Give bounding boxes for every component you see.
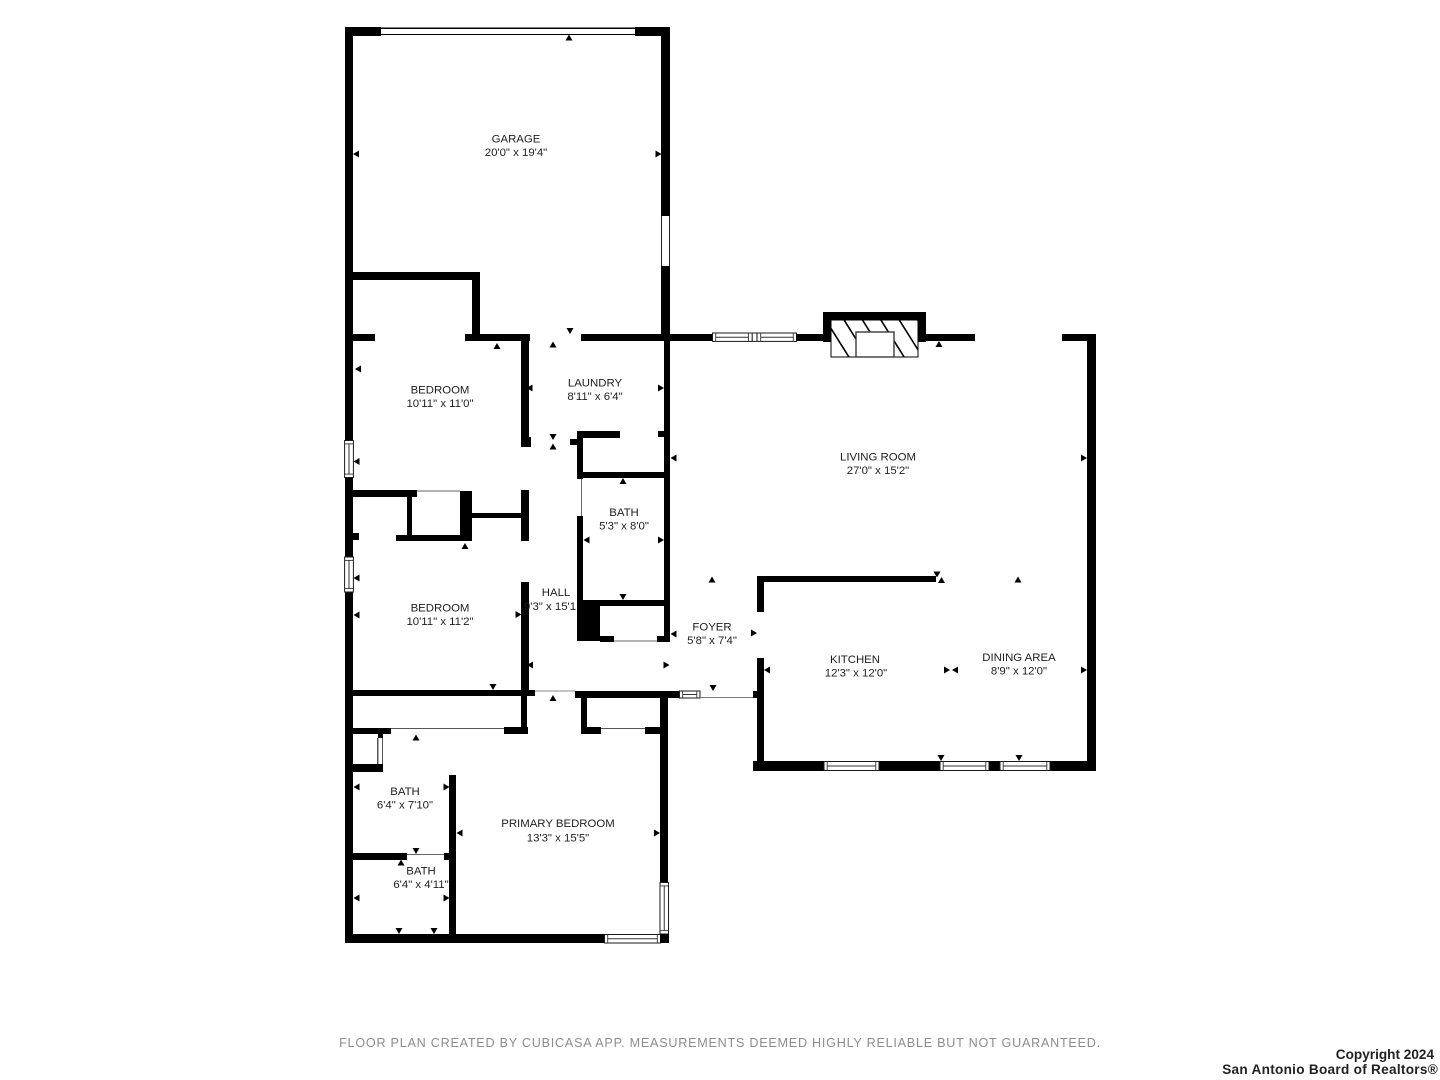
svg-text:13'3" x 15'5": 13'3" x 15'5" (527, 833, 589, 845)
svg-text:12'3" x 12'0": 12'3" x 12'0" (825, 668, 887, 680)
svg-text:27'0" x 15'2": 27'0" x 15'2" (847, 465, 909, 477)
svg-text:Copyright 2024: Copyright 2024 (1336, 1047, 1435, 1062)
svg-text:FOYER: FOYER (692, 622, 731, 634)
svg-text:PRIMARY BEDROOM: PRIMARY BEDROOM (501, 818, 615, 830)
svg-text:6'4" x 4'11": 6'4" x 4'11" (393, 879, 448, 891)
svg-text:20'0" x 19'4": 20'0" x 19'4" (485, 147, 547, 159)
svg-text:San Antonio Board of Realtors®: San Antonio Board of Realtors® (1222, 1062, 1438, 1077)
svg-text:KITCHEN: KITCHEN (830, 654, 880, 666)
svg-text:BATH: BATH (609, 507, 639, 519)
svg-text:BATH: BATH (406, 866, 436, 878)
svg-text:8'9" x 12'0": 8'9" x 12'0" (991, 666, 1047, 678)
svg-text:8'11" x 6'4": 8'11" x 6'4" (567, 391, 622, 403)
svg-text:GARAGE: GARAGE (492, 134, 541, 146)
svg-text:FLOOR PLAN CREATED BY CUBICASA: FLOOR PLAN CREATED BY CUBICASA APP. MEAS… (339, 1036, 1101, 1050)
svg-text:9'3" x 15'1: 9'3" x 15'1 (524, 601, 576, 613)
svg-text:6'4" x 7'10": 6'4" x 7'10" (377, 800, 433, 812)
svg-text:5'3" x 8'0": 5'3" x 8'0" (599, 521, 649, 533)
svg-text:BATH: BATH (390, 786, 420, 798)
svg-text:HALL: HALL (542, 587, 571, 599)
svg-text:10'11" x 11'2": 10'11" x 11'2" (406, 616, 473, 628)
svg-text:5'8" x 7'4": 5'8" x 7'4" (687, 635, 737, 647)
svg-text:10'11" x 11'0": 10'11" x 11'0" (406, 398, 473, 410)
svg-text:BEDROOM: BEDROOM (411, 385, 470, 397)
svg-text:LIVING ROOM: LIVING ROOM (840, 452, 916, 464)
svg-text:LAUNDRY: LAUNDRY (568, 378, 623, 390)
svg-text:DINING AREA: DINING AREA (982, 652, 1056, 664)
svg-text:BEDROOM: BEDROOM (411, 603, 470, 615)
